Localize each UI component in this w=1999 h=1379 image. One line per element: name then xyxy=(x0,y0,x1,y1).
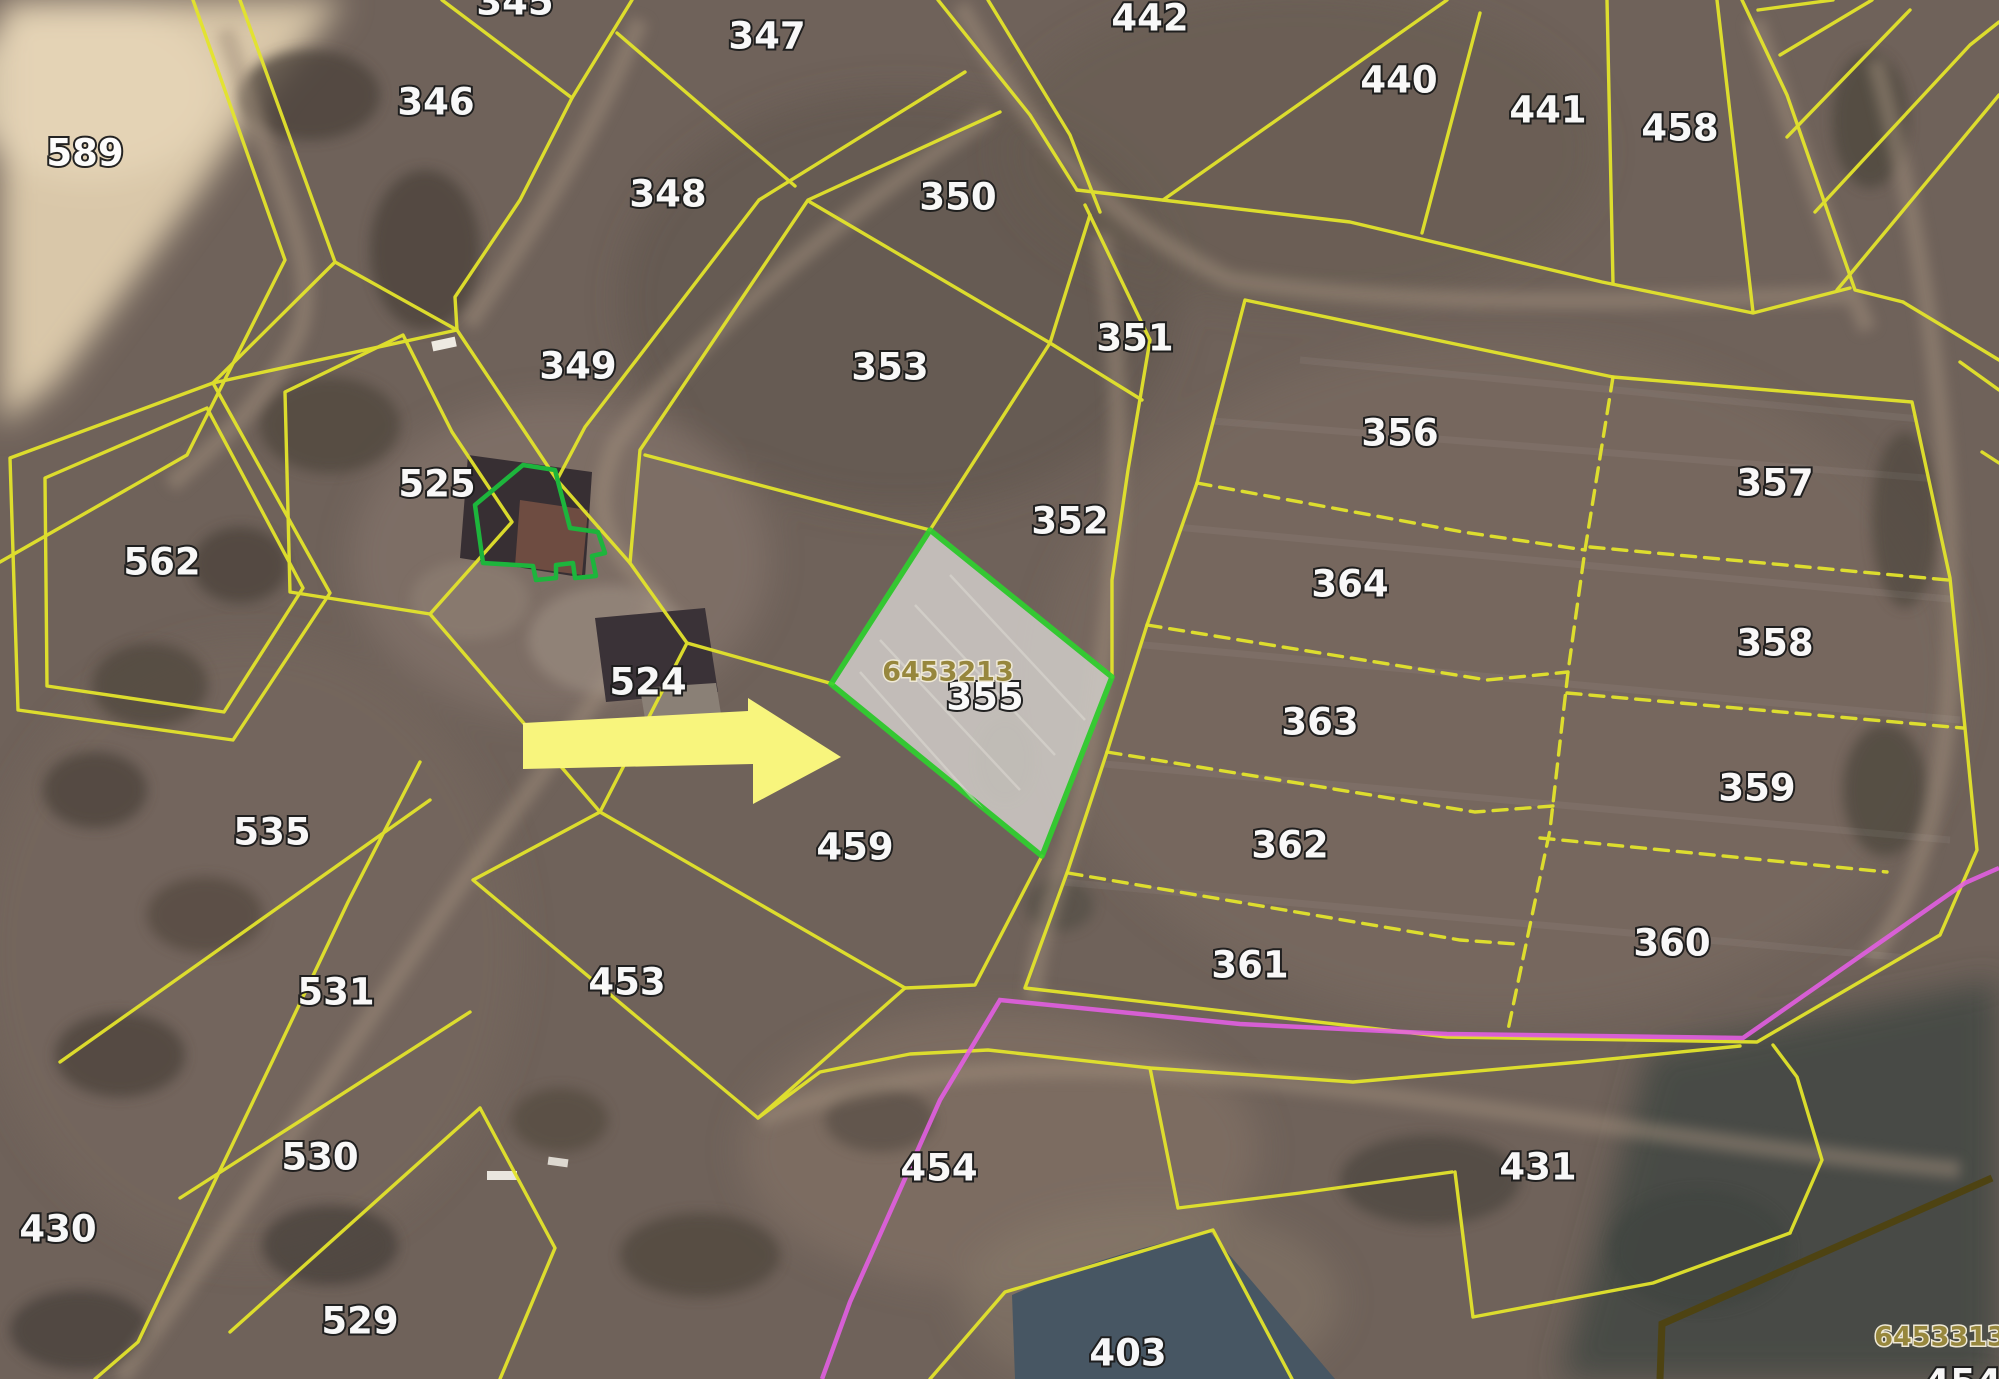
parcel-label-562: 562 xyxy=(123,541,200,584)
parcel-label-349: 349 xyxy=(539,345,616,388)
parcel-label-360: 360 xyxy=(1633,922,1710,965)
parcel-label-441: 441 xyxy=(1509,89,1586,132)
cadastral-code-6453213: 6453213 xyxy=(882,657,1014,688)
parcel-label-347: 347 xyxy=(728,15,805,58)
parcel-label-459: 459 xyxy=(816,826,893,869)
ground-object xyxy=(487,1171,517,1180)
parcel-label-346: 346 xyxy=(397,81,474,124)
parcel-label-430: 430 xyxy=(19,1208,96,1251)
parcel-label-458: 458 xyxy=(1641,107,1718,150)
parcel-label-362: 362 xyxy=(1251,824,1328,867)
parcel-label-535: 535 xyxy=(233,811,310,854)
parcel-label-525: 525 xyxy=(398,463,475,506)
parcel-label-357: 357 xyxy=(1736,462,1813,505)
partial-parcel-label-454: 454 xyxy=(1924,1362,1999,1379)
parcel-label-358: 358 xyxy=(1736,622,1813,665)
parcel-label-352: 352 xyxy=(1031,500,1108,543)
cadastral-map-viewport[interactable]: 5893463473483504424404414583493533513563… xyxy=(0,0,1999,1379)
parcel-label-351: 351 xyxy=(1096,317,1173,360)
parcel-label-454: 454 xyxy=(900,1147,977,1190)
parcel-label-524: 524 xyxy=(609,661,686,704)
cadastral-map[interactable]: 5893463473483504424404414583493533513563… xyxy=(0,0,1999,1379)
parcel-label-453: 453 xyxy=(588,961,665,1004)
parcel-label-403: 403 xyxy=(1089,1332,1166,1375)
cadastral-code-6453313: 6453313 xyxy=(1874,1322,1999,1353)
parcel-label-359: 359 xyxy=(1718,767,1795,810)
parcel-label-431: 431 xyxy=(1499,1146,1576,1189)
parcel-label-361: 361 xyxy=(1211,944,1288,987)
parcel-label-356: 356 xyxy=(1361,412,1438,455)
parcel-label-350: 350 xyxy=(919,176,996,219)
parcel-label-442: 442 xyxy=(1111,0,1188,40)
parcel-label-589: 589 xyxy=(46,132,123,175)
parcel-label-353: 353 xyxy=(851,346,928,389)
parcel-label-530: 530 xyxy=(281,1136,358,1179)
parcel-label-531: 531 xyxy=(297,971,374,1014)
parcel-label-364: 364 xyxy=(1311,563,1388,606)
parcel-label-529: 529 xyxy=(321,1300,398,1343)
parcel-label-348: 348 xyxy=(629,173,706,216)
parcel-label-363: 363 xyxy=(1281,701,1358,744)
parcel-label-440: 440 xyxy=(1360,59,1437,102)
partial-parcel-label-345: 345 xyxy=(476,0,553,24)
